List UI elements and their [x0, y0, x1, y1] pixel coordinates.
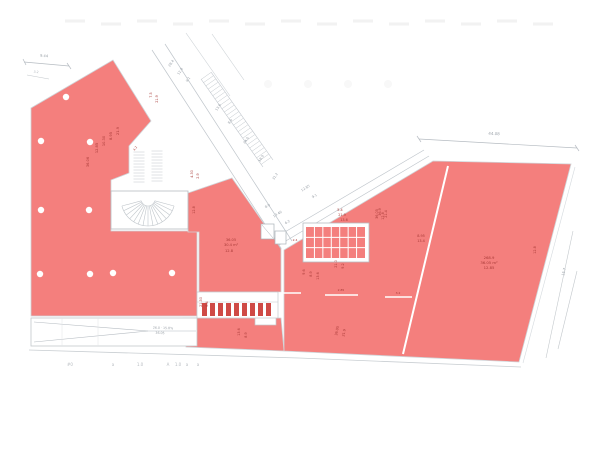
column-dot	[87, 139, 93, 145]
annotation: 12.8	[192, 206, 196, 214]
storage-cells	[210, 303, 215, 316]
floorplan-svg: 36.0612.8510.308.9521.97.521.94.228.412.…	[0, 0, 600, 449]
column-dot	[110, 270, 116, 276]
annotation: 6.2	[284, 219, 291, 225]
ramp-strip	[31, 318, 197, 346]
annotation: 12.85	[95, 143, 99, 153]
annotation: 12.85	[300, 184, 310, 193]
annotation: 21.30	[199, 297, 203, 307]
dim-label-top: 44.08	[488, 131, 500, 137]
annotation: 9.1	[311, 193, 318, 199]
annotation: 2.9	[196, 173, 200, 178]
highlight-area-left	[31, 60, 197, 316]
annotation: 13.6	[340, 218, 348, 222]
ramp-label: 26.0 · 15.8%	[153, 326, 173, 331]
escalator-side-2	[211, 72, 273, 160]
annotation: 18.9	[257, 154, 265, 162]
corridor-line-4	[212, 34, 244, 80]
annotation: 6.4	[205, 301, 209, 306]
annotation: 36.05	[226, 238, 236, 242]
storage-cells	[250, 303, 255, 316]
annotation: 9.6	[302, 269, 306, 274]
annotation: 21.9	[116, 126, 120, 135]
dim-right-2	[558, 271, 577, 349]
column-dot	[63, 94, 69, 100]
annotation: 8.9	[244, 332, 248, 337]
column-dot	[38, 207, 44, 213]
storage-cells	[258, 303, 263, 316]
survey-mark: #0	[67, 362, 73, 367]
ramp-label: 36.05	[155, 331, 164, 335]
annotation: 10.30	[102, 135, 106, 146]
dim-top	[419, 139, 577, 148]
annotation: 8.9	[264, 203, 271, 209]
storage-cells	[218, 303, 223, 316]
annotation: 30.4 m²	[224, 243, 239, 247]
annotation: 9.2	[341, 263, 345, 268]
annotation: 36.06	[86, 156, 90, 167]
scan-artifact-dots	[264, 80, 272, 88]
room-label-main: 12.85	[484, 265, 495, 270]
survey-mark: a	[186, 362, 189, 367]
annotation: 13.6	[316, 272, 320, 280]
annotation: 2.85	[338, 288, 345, 292]
storage-cells	[234, 303, 239, 316]
column-dot	[169, 270, 175, 276]
survey-mark: A	[167, 362, 170, 367]
scan-artifact-dots	[304, 80, 312, 88]
column-dot	[87, 271, 93, 277]
survey-mark: a	[112, 362, 115, 367]
annotation: 8.9	[309, 271, 313, 276]
annotation: 21.9	[338, 213, 346, 217]
dim-topleft	[24, 62, 69, 66]
annotation: 8.95	[417, 234, 425, 238]
survey-mark: a	[197, 362, 200, 367]
elevator-cell-2	[275, 231, 286, 244]
survey-mark: 1.0	[137, 362, 144, 367]
annotation: 4.30	[190, 170, 194, 178]
dim-label-right: 15.7	[561, 267, 567, 276]
column-dot	[86, 207, 92, 213]
annotation: 21.0	[334, 260, 338, 268]
annotation: 21.9	[155, 95, 159, 103]
annotation: 36.9	[378, 208, 382, 216]
dim-label-topleft-2: 3.2	[33, 70, 38, 74]
scan-artifact-dots	[384, 80, 392, 88]
dim-topleft-2	[27, 75, 49, 79]
annotation: 8.95	[109, 132, 113, 140]
storage-cells	[226, 303, 231, 316]
dim-label-topleft: 9.44	[40, 54, 49, 59]
column-dot	[37, 271, 43, 277]
dim-right-1	[546, 231, 573, 358]
annotation: 5.4	[337, 208, 342, 212]
storage-cells	[242, 303, 247, 316]
floorplan-screenshot: 36.0612.8510.308.9521.97.521.94.228.412.…	[0, 0, 600, 449]
survey-mark: 1.0	[175, 362, 182, 367]
annotation: 13.40	[272, 210, 282, 219]
column-dot	[38, 138, 44, 144]
annotation: 28.4	[167, 59, 175, 67]
annotation: 3.2	[396, 291, 401, 295]
stair-room	[111, 191, 188, 229]
storage-cells	[266, 303, 271, 316]
scan-artifact-dots	[344, 80, 352, 88]
annotation: 12.8	[225, 249, 234, 253]
annotation: 4.2	[132, 145, 138, 151]
annotation: 21.4	[384, 210, 388, 218]
annotation: 13.6	[237, 328, 241, 336]
annotation: 13.4	[417, 239, 425, 243]
annotation: 12.8	[533, 246, 537, 254]
escalator-side-1	[201, 79, 263, 167]
annotation: 7.5	[149, 92, 153, 97]
annotation: 31.2	[271, 172, 279, 180]
annotation: 2.4	[293, 238, 298, 242]
